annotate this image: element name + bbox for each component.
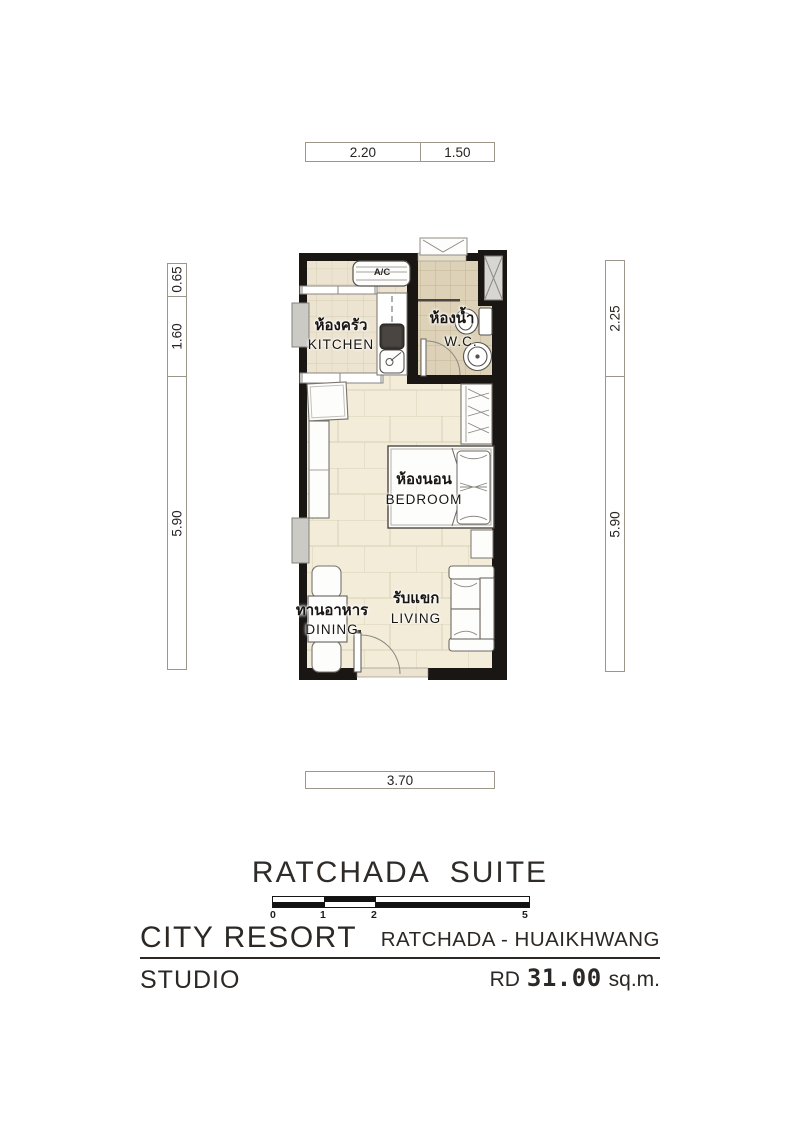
- dining-label-en: DINING: [305, 622, 358, 637]
- scale-bar-row-bottom: [273, 902, 529, 907]
- bedroom-label-thai: ห้องนอน: [396, 472, 452, 488]
- title-block-row2: STUDIO RD 31.00 sq.m.: [140, 962, 660, 996]
- wc-label-thai: ห้องน้ำ: [430, 311, 475, 327]
- wardrobe-icon: [461, 384, 492, 444]
- dining-chair-bottom: [312, 641, 341, 672]
- scale-seg: [375, 902, 529, 907]
- floorplan-sheet: 2.20 1.50 0.65 1.60 5.90 2.25 5.90 3.70: [0, 0, 800, 1132]
- service-shaft: [478, 250, 507, 306]
- dining-label-thai: ทานอาหาร: [296, 603, 368, 619]
- dining-chair-top: [312, 566, 341, 598]
- area-unit: sq.m.: [609, 964, 660, 996]
- scale-label-0: 0: [270, 909, 276, 921]
- title-block-row1: CITY RESORT RATCHADA - HUAIKHWANG: [140, 921, 660, 955]
- balcony-threshold: [357, 668, 428, 677]
- unit-area: RD 31.00 sq.m.: [490, 962, 660, 996]
- kitchen-label-en: KITCHEN: [308, 337, 374, 352]
- bedside-table-icon: [471, 530, 493, 558]
- scale-label-5: 5: [522, 909, 528, 921]
- scale-bar: [272, 896, 530, 908]
- project-name: CITY RESORT: [140, 921, 357, 955]
- dining-set-icon: [308, 566, 347, 672]
- scale-seg: [324, 902, 375, 907]
- unit-type: STUDIO: [140, 964, 240, 996]
- cabinet-icon: [309, 421, 329, 518]
- scale-label-1: 1: [320, 909, 326, 921]
- living-label-thai: รับแขก: [393, 591, 440, 607]
- wall-top-west: [299, 253, 418, 261]
- area-value: 31.00: [527, 962, 602, 994]
- scale-bar-labels: 0 1 2 5: [272, 908, 528, 922]
- entrance-mat-icon: [420, 238, 467, 255]
- column-left-lower: [292, 518, 309, 563]
- sofa-icon: [449, 566, 494, 651]
- page-title: RATCHADA SUITE: [200, 856, 600, 890]
- kitchen-counter-strip: [377, 293, 407, 375]
- entry-wc-divider: [418, 299, 460, 302]
- title-block-divider: [140, 957, 660, 959]
- kitchen-label-thai: ห้องครัว: [315, 318, 368, 334]
- title-block: CITY RESORT RATCHADA - HUAIKHWANG STUDIO…: [140, 921, 660, 996]
- area-prefix: RD: [490, 964, 520, 996]
- pillow-icon: [457, 451, 490, 524]
- kitchen-counter-bottom: [300, 373, 383, 383]
- kitchen-counter-top: [300, 286, 377, 294]
- bedroom-label-en: BEDROOM: [386, 492, 463, 507]
- kitchen-sink-icon: [380, 350, 404, 373]
- ac-unit-label: A/C: [374, 267, 390, 278]
- project-location: RATCHADA - HUAIKHWANG: [381, 925, 660, 955]
- wc-label-en: W.C.: [444, 334, 477, 349]
- column-left-upper: [292, 303, 309, 347]
- scale-seg: [273, 902, 324, 907]
- wall-bottom-east: [428, 668, 507, 680]
- living-label-en: LIVING: [391, 611, 441, 626]
- scale-label-2: 2: [371, 909, 377, 921]
- fridge-icon: [307, 382, 348, 421]
